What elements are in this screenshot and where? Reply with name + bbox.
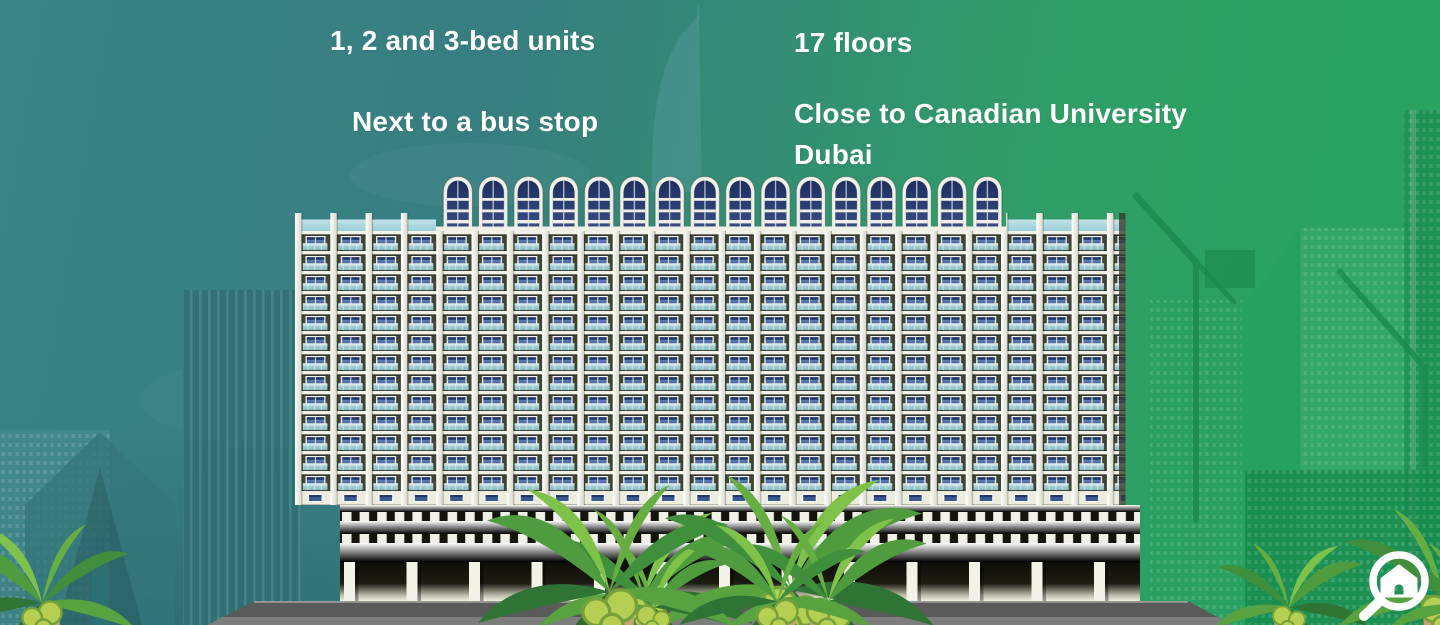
arched-crown — [440, 175, 1005, 231]
callout-bus-stop: Next to a bus stop — [352, 101, 598, 142]
callout-university: Close to Canadian University Dubai — [794, 93, 1239, 175]
callout-bed-units: 1, 2 and 3-bed units — [330, 20, 595, 61]
facade-floors — [295, 231, 1125, 491]
infographic-canvas: 1, 2 and 3-bed units Next to a bus stop … — [0, 0, 1440, 625]
magnifier-house-icon — [1364, 555, 1425, 616]
bayut-logo — [1347, 545, 1432, 623]
ground-floor-row — [295, 491, 1125, 505]
callout-floors: 17 floors — [794, 22, 913, 63]
